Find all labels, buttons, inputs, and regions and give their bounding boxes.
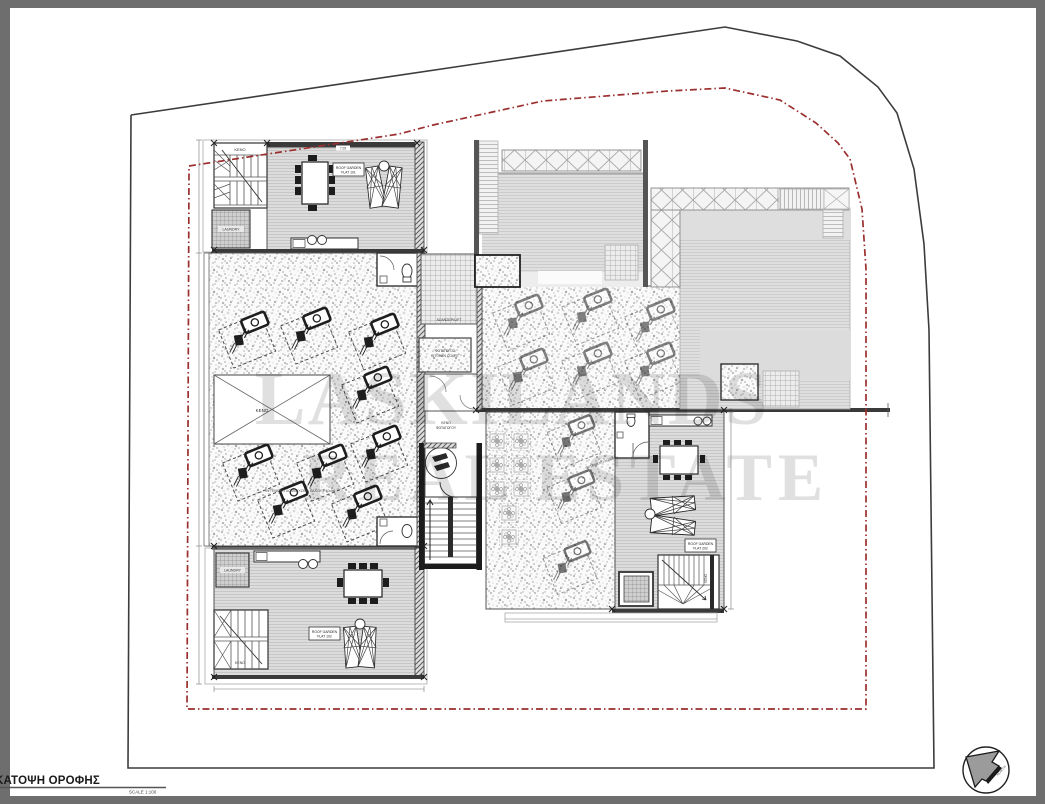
svg-text:ΦΩΤΑΓΩΓΟΣ: ΦΩΤΑΓΩΓΟΣ	[435, 349, 455, 353]
svg-text:REAL ESTATE: REAL ESTATE	[303, 439, 829, 515]
svg-text:SCALE 1:100: SCALE 1:100	[129, 790, 157, 795]
svg-text:ROOF GARDEN: ROOF GARDEN	[312, 630, 338, 634]
svg-text:ΑΣΑΝΣΕΡ/LIFT: ΑΣΑΝΣΕΡ/LIFT	[436, 318, 462, 322]
svg-text:FLAT 202: FLAT 202	[693, 547, 708, 551]
svg-text:ROOF GARDEN: ROOF GARDEN	[688, 542, 714, 546]
svg-text:FLAT 101: FLAT 101	[341, 171, 356, 175]
svg-text:LAUNDRY: LAUNDRY	[222, 228, 240, 232]
svg-text:ΚΕΝΟ: ΚΕΝΟ	[235, 661, 245, 665]
svg-text:7.05: 7.05	[340, 147, 346, 151]
svg-text:FLAT 102: FLAT 102	[317, 635, 332, 639]
svg-text:ROOF GARDEN: ROOF GARDEN	[336, 166, 362, 170]
svg-text:ΚΕΝΟ: ΚΕΝΟ	[234, 147, 245, 152]
svg-text:LAUNDRY: LAUNDRY	[224, 569, 242, 573]
svg-text:ΚΕΝΟ: ΚΕΝΟ	[704, 573, 708, 583]
svg-text:ΚΑΤΟΨΗ ΟΡΟΦΗΣ: ΚΑΤΟΨΗ ΟΡΟΦΗΣ	[0, 775, 100, 787]
svg-text:LASKILANDS: LASKILANDS	[255, 357, 769, 441]
